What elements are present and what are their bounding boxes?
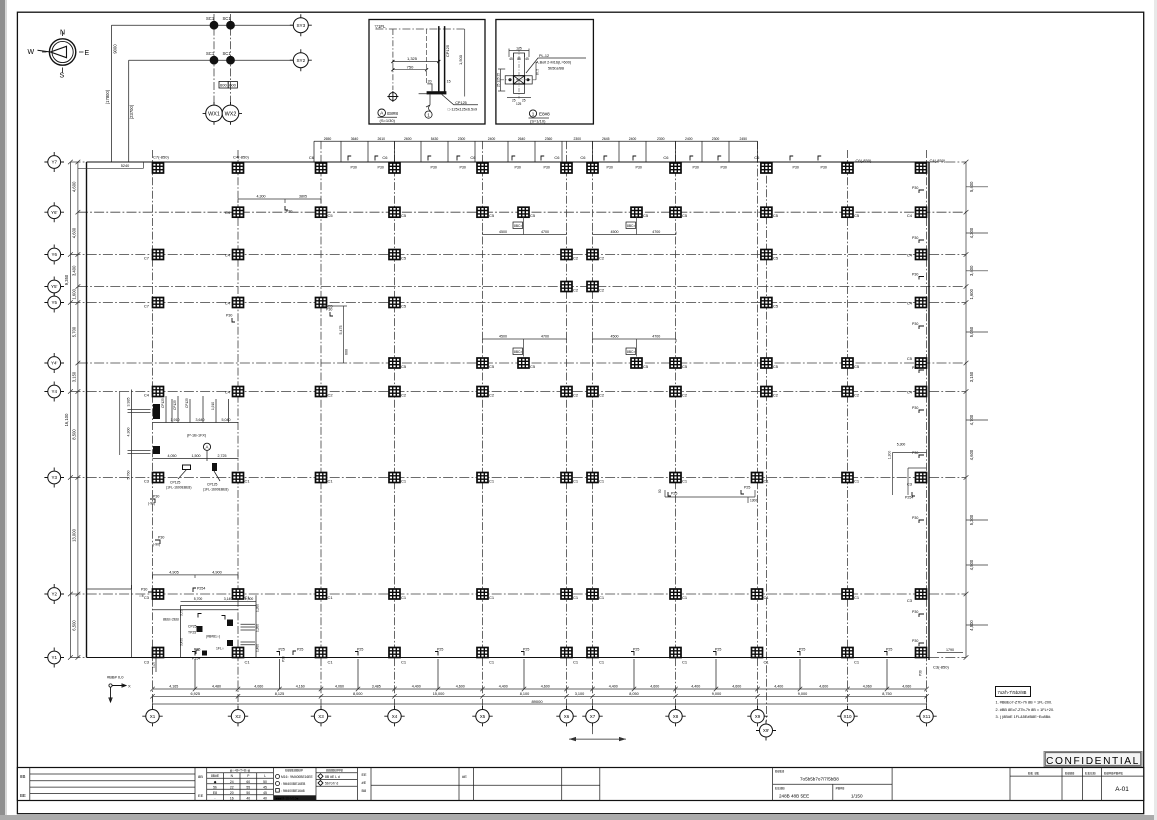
svg-text:3,485: 3,485 (372, 685, 381, 689)
svg-text:P30: P30 (281, 656, 285, 662)
svg-text:P30: P30 (158, 536, 164, 540)
svg-text:2400: 2400 (488, 137, 496, 141)
svg-text:C6: C6 (470, 155, 476, 160)
svg-text:C1: C1 (573, 595, 579, 600)
svg-text:B8: B8 (362, 789, 367, 793)
svg-text:25 125 25: 25 125 25 (496, 73, 500, 87)
svg-text:2. #BB 8Eo7-Z7b-7h 8B = 1FL+20: 2. #BB 8Eo7-Z7b-7h 8B = 1FL+20. (996, 708, 1055, 712)
svg-text:5,475: 5,475 (339, 326, 343, 335)
svg-text:3805: 3805 (299, 195, 307, 199)
svg-text:CP125: CP125 (455, 101, 467, 105)
svg-text:4,060: 4,060 (254, 685, 263, 689)
svg-text:P30: P30 (912, 186, 918, 190)
svg-text:C1: C1 (682, 595, 688, 600)
svg-text:45: 45 (263, 785, 267, 789)
svg-text:C5: C5 (401, 213, 407, 218)
svg-text:1,910: 1,910 (171, 418, 180, 422)
svg-text:600: 600 (345, 349, 349, 355)
svg-text:P254: P254 (192, 656, 200, 660)
svg-text:C2: C2 (599, 256, 605, 261)
svg-text:C4: C4 (144, 393, 150, 398)
svg-text:□-125x125x6.5x9: □-125x125x6.5x9 (448, 108, 477, 112)
svg-text:(-90): (-90) (148, 502, 155, 506)
svg-text:A.Bolt 2-M16(L=600): A.Bolt 2-M16(L=600) (536, 60, 572, 64)
svg-text:C2: C2 (854, 393, 860, 398)
svg-text:3,450: 3,450 (179, 638, 183, 646)
svg-text:8,750: 8,750 (882, 692, 892, 696)
svg-text:3,400: 3,400 (72, 265, 77, 276)
svg-text:2610: 2610 (377, 137, 385, 141)
svg-text:C3: C3 (144, 660, 150, 665)
svg-text:C6: C6 (754, 155, 760, 160)
svg-text:C4: C4 (907, 301, 913, 306)
svg-text:: 9M400BE16#8: : 9M400BE16#8 (281, 789, 305, 793)
svg-text:2650: 2650 (324, 137, 332, 141)
svg-text:4,600: 4,600 (732, 685, 741, 689)
svg-text:4,300: 4,300 (127, 428, 131, 437)
svg-text:P30: P30 (544, 165, 550, 169)
svg-text:1: 1 (532, 111, 535, 116)
svg-text:8,500: 8,500 (72, 429, 77, 440)
svg-text:P30: P30 (821, 165, 827, 169)
svg-text:5,700: 5,700 (72, 326, 77, 337)
svg-text:#E: #E (462, 774, 467, 779)
svg-text:(-90): (-90) (153, 543, 160, 547)
svg-text:4500: 4500 (499, 335, 507, 339)
svg-text:C5: C5 (682, 364, 688, 369)
svg-text:3,935: 3,935 (127, 398, 131, 407)
svg-text:C5: C5 (773, 213, 779, 218)
svg-text:20: 20 (428, 80, 432, 84)
svg-text:4,600: 4,600 (819, 685, 828, 689)
svg-text:8B#E: 8B#E (211, 774, 220, 778)
svg-text:C5: C5 (328, 213, 334, 218)
svg-text:C5: C5 (643, 213, 649, 218)
svg-text:5b5bz/8B: 5b5bz/8B (548, 66, 565, 70)
svg-text:13,000: 13,000 (72, 528, 77, 541)
svg-text:CP125: CP125 (445, 44, 450, 57)
svg-text:1,910: 1,910 (211, 402, 215, 410)
svg-text:C3: C3 (907, 598, 913, 603)
svg-text:C4: C4 (907, 213, 913, 218)
svg-text:#E: #E (362, 781, 367, 785)
svg-text:(#B#81○): (#B#81○) (206, 634, 220, 638)
svg-text:6,925: 6,925 (190, 692, 200, 696)
svg-text:87.5: 87.5 (536, 69, 540, 75)
svg-text:C2: C2 (573, 393, 579, 398)
svg-text:S: S (60, 73, 65, 80)
svg-text:P25: P25 (297, 648, 303, 652)
svg-text:PL-12: PL-12 (539, 54, 549, 58)
svg-text:C5: C5 (530, 364, 536, 369)
svg-text:3640: 3640 (351, 137, 359, 141)
svg-text:C4: C4 (225, 253, 231, 258)
svg-text:C6: C6 (382, 155, 388, 160)
svg-text:Y7: Y7 (51, 160, 57, 165)
svg-text:4,400: 4,400 (499, 685, 508, 689)
svg-text:5b7o7/ d: 5b7o7/ d (325, 782, 338, 786)
svg-text:SC1: SC1 (223, 51, 232, 56)
svg-text:4,060: 4,060 (335, 685, 344, 689)
svg-text:4500: 4500 (611, 230, 619, 234)
svg-text:P30: P30 (607, 165, 613, 169)
svg-text:5b: 5b (213, 785, 217, 789)
svg-text:P30: P30 (912, 406, 918, 410)
svg-text:600: 600 (229, 83, 236, 88)
svg-text:C1: C1 (764, 660, 770, 665)
svg-text:C5: C5 (489, 364, 495, 369)
svg-text:A-01: A-01 (1115, 786, 1129, 793)
svg-text:4,600: 4,600 (72, 181, 77, 192)
svg-text:4,400: 4,400 (691, 685, 700, 689)
svg-text:C6: C6 (554, 155, 560, 160)
svg-text:C1: C1 (245, 660, 251, 665)
svg-text:W: W (28, 49, 35, 56)
svg-text:4,300: 4,300 (257, 195, 266, 199)
svg-text:P30: P30 (912, 516, 918, 520)
svg-text:C4: C4 (225, 390, 231, 395)
svg-text:4,900: 4,900 (212, 571, 222, 575)
svg-text:X5: X5 (480, 714, 486, 719)
svg-text:750: 750 (407, 64, 414, 69)
svg-text:CONFIDENTIAL: CONFIDENTIAL (1046, 756, 1140, 767)
svg-text:X1: X1 (150, 714, 156, 719)
svg-text:C1: C1 (489, 660, 495, 665)
svg-text:X2: X2 (235, 714, 241, 719)
svg-text:C1: C1 (599, 595, 605, 600)
svg-text:8BC>: 8BC> (627, 224, 635, 228)
svg-text:A: A (206, 445, 209, 450)
svg-text:7o5b5b7o7/7/5bB8: 7o5b5b7o7/7/5bB8 (800, 776, 839, 781)
svg-text:C2: C2 (401, 393, 407, 398)
svg-text:(1FL-1600EBE8): (1FL-1600EBE8) (166, 486, 191, 490)
svg-text:4500: 4500 (499, 230, 507, 234)
svg-text:C1: C1 (328, 479, 334, 484)
svg-text:EE: EE (362, 773, 368, 777)
svg-text:C1: C1 (328, 660, 334, 665)
svg-text:3,640: 3,640 (196, 418, 205, 422)
svg-text:1,300: 1,300 (255, 624, 259, 632)
svg-text:P30: P30 (636, 165, 642, 169)
svg-text:P30: P30 (912, 236, 918, 240)
svg-text:X: X (128, 684, 131, 689)
svg-text:8BC>: 8BC> (514, 224, 522, 228)
svg-text:3,150: 3,150 (969, 371, 974, 382)
svg-text:4,600: 4,600 (541, 685, 550, 689)
svg-text:3,100: 3,100 (575, 692, 585, 696)
svg-text:89000: 89000 (531, 699, 543, 704)
svg-text:4700: 4700 (652, 230, 660, 234)
svg-text:Y3: Y3 (51, 475, 57, 480)
svg-text:6,500: 6,500 (72, 620, 77, 631)
svg-text:C1: C1 (573, 660, 579, 665)
svg-text:4,480: 4,480 (212, 685, 221, 689)
svg-text:C2: C2 (682, 393, 688, 398)
svg-text:4,160: 4,160 (296, 685, 305, 689)
svg-text:#BB# 0,0: #BB# 0,0 (107, 675, 124, 680)
svg-text:Y6: Y6 (51, 252, 57, 257)
svg-text:WX1: WX1 (208, 112, 220, 118)
svg-text:2645: 2645 (602, 137, 610, 141)
svg-text:TP25: TP25 (188, 630, 196, 634)
svg-text:(17800): (17800) (105, 89, 110, 104)
svg-text:C2: C2 (573, 256, 579, 261)
svg-text:CP25: CP25 (188, 624, 197, 628)
svg-text:C5: C5 (401, 304, 407, 309)
svg-text:1,500: 1,500 (192, 454, 201, 458)
svg-text:■■■M-16-M16■: ■■■M-16-M16■ (276, 796, 299, 800)
svg-text:C5: C5 (682, 213, 688, 218)
svg-text:4,600: 4,600 (650, 685, 659, 689)
svg-text:C5: C5 (854, 364, 860, 369)
svg-text:-: - (214, 796, 215, 800)
svg-text:P30: P30 (912, 366, 918, 370)
svg-text:B8E8: B8E8 (775, 770, 784, 774)
svg-text:P25: P25 (523, 648, 529, 652)
svg-text:C4: C4 (225, 210, 231, 215)
svg-text:C1: C1 (599, 479, 605, 484)
svg-text:4,050: 4,050 (168, 454, 177, 458)
svg-text:C4(-850): C4(-850) (233, 155, 249, 160)
svg-text:CP125: CP125 (161, 398, 165, 408)
svg-text:55: 55 (246, 785, 250, 789)
svg-text:22: 22 (230, 785, 234, 789)
svg-text:2360: 2360 (545, 137, 553, 141)
svg-text:(S=1/30): (S=1/30) (380, 118, 396, 123)
svg-text:M16 : 9M400BE16EE: M16 : 9M400BE16EE (281, 775, 314, 779)
svg-text:C1: C1 (599, 660, 605, 665)
svg-text:C6: C6 (580, 155, 586, 160)
svg-text:EE: EE (198, 793, 204, 798)
svg-text:248B 48B 5EE: 248B 48B 5EE (779, 794, 809, 799)
svg-text:C1: C1 (245, 479, 251, 484)
svg-text:45: 45 (263, 791, 267, 795)
svg-text:C3(-850): C3(-850) (933, 665, 949, 670)
svg-text:C5: C5 (773, 256, 779, 261)
svg-text:50: 50 (263, 780, 267, 784)
svg-text:1,400: 1,400 (255, 644, 259, 652)
svg-text:C1: C1 (854, 660, 860, 665)
svg-text:E: E (85, 50, 90, 57)
svg-text:X10: X10 (843, 714, 852, 719)
svg-text:C5: C5 (401, 364, 407, 369)
svg-text:C3: C3 (144, 479, 150, 484)
svg-text:8BC>: 8BC> (514, 350, 522, 354)
svg-text:P25: P25 (886, 648, 892, 652)
svg-text:2450: 2450 (739, 137, 747, 141)
svg-text:3. ( )8B#E 1FL&5E#B8E~Eo8B#.: 3. ( )8B#E 1FL&5E#B8E~Eo8B#. (996, 715, 1052, 719)
svg-text:1,500: 1,500 (458, 54, 463, 65)
svg-text:P25: P25 (744, 486, 750, 490)
svg-text:2300: 2300 (657, 137, 665, 141)
svg-text:X4: X4 (392, 714, 398, 719)
svg-text:P30: P30 (912, 273, 918, 277)
svg-text:C1: C1 (401, 479, 407, 484)
svg-text:C4: C4 (907, 390, 913, 395)
svg-text:P30: P30 (153, 495, 159, 499)
svg-text:C7: C7 (144, 304, 150, 309)
svg-text:888BB##8: 888BB##8 (326, 769, 343, 773)
svg-text:C1: C1 (328, 595, 334, 600)
svg-text:2300: 2300 (712, 137, 720, 141)
svg-text:5430: 5430 (431, 137, 439, 141)
svg-text:C5: C5 (530, 213, 536, 218)
svg-text:: 9M400BE16EB: : 9M400BE16EB (281, 782, 306, 786)
svg-text:SC1: SC1 (206, 51, 215, 56)
svg-text:1FL○: 1FL○ (216, 646, 224, 650)
svg-text:P30: P30 (515, 165, 521, 169)
svg-text:X3: X3 (318, 714, 324, 719)
svg-text:P25: P25 (671, 492, 677, 496)
svg-text:1: 1 (427, 112, 430, 117)
svg-text:E8#8: E8#8 (539, 111, 550, 116)
svg-text:P30: P30 (793, 165, 799, 169)
svg-text:C1: C1 (401, 660, 407, 665)
svg-text:4,600: 4,600 (969, 449, 974, 460)
svg-text:Y1: Y1 (51, 655, 57, 660)
svg-text:2400: 2400 (629, 137, 637, 141)
svg-text:P25: P25 (437, 648, 443, 652)
svg-text:24: 24 (230, 780, 234, 784)
svg-text:E8: E8 (213, 791, 217, 795)
svg-text:8B: 8B (20, 774, 25, 779)
svg-text:9,000: 9,000 (798, 692, 808, 696)
svg-text:X6: X6 (564, 714, 570, 719)
svg-text:20: 20 (230, 791, 234, 795)
svg-text:5,760: 5,760 (127, 471, 131, 480)
svg-text:P30: P30 (226, 314, 232, 318)
svg-text:45: 45 (509, 57, 513, 61)
svg-text:8,000: 8,000 (353, 692, 363, 696)
svg-text:8,050: 8,050 (629, 692, 639, 696)
svg-text:#B#8: #B#8 (836, 786, 845, 790)
svg-text:C1: C1 (489, 479, 495, 484)
svg-text:N: N (60, 30, 65, 37)
svg-text:○⑤: ○⑤ (139, 594, 144, 598)
svg-text:P25: P25 (799, 648, 805, 652)
svg-text:C1: C1 (573, 479, 579, 484)
svg-text:C4: C4 (225, 301, 231, 306)
svg-text:4,060: 4,060 (902, 685, 911, 689)
svg-text:C2: C2 (599, 288, 605, 293)
svg-text:SC1: SC1 (223, 16, 232, 21)
svg-text:C5: C5 (907, 356, 913, 361)
svg-text:4700: 4700 (652, 335, 660, 339)
svg-text:C1: C1 (489, 595, 495, 600)
svg-text:Y5: Y5 (51, 300, 57, 305)
svg-text:125: 125 (516, 102, 522, 106)
svg-text:2300: 2300 (573, 137, 581, 141)
svg-text:C7(-850): C7(-850) (153, 155, 169, 160)
svg-text:3,150: 3,150 (72, 371, 77, 382)
svg-text:C3: C3 (144, 595, 150, 600)
svg-text:BE 8E: BE 8E (1028, 770, 1040, 775)
svg-text:L: L (264, 774, 266, 778)
svg-text:P254: P254 (905, 496, 913, 500)
svg-text:5,700: 5,700 (194, 597, 203, 601)
svg-text:SY2: SY2 (296, 58, 305, 63)
svg-text:15,000: 15,000 (433, 692, 445, 696)
svg-text:P30: P30 (351, 165, 357, 169)
svg-text:3,75: 3,75 (179, 610, 183, 616)
svg-text:175: 175 (516, 47, 522, 51)
svg-text:1,300: 1,300 (255, 604, 259, 612)
svg-text:SC1: SC1 (206, 16, 215, 21)
svg-text:2400: 2400 (685, 137, 693, 141)
svg-text:EEEB: EEEB (1085, 770, 1096, 775)
svg-text:C1: C1 (682, 479, 688, 484)
svg-text:B888: B888 (1065, 770, 1075, 775)
svg-text:CP125: CP125 (173, 400, 177, 410)
svg-text:Y4: Y4 (51, 389, 57, 394)
svg-text:4,400: 4,400 (412, 685, 421, 689)
svg-text:8EB○2EB: 8EB○2EB (163, 617, 179, 621)
svg-text:25: 25 (522, 98, 526, 102)
svg-text:5,300: 5,300 (897, 443, 906, 447)
svg-text:4,905: 4,905 (169, 571, 179, 575)
svg-text:C2: C2 (599, 393, 605, 398)
svg-text:P30: P30 (693, 165, 699, 169)
svg-text:C5: C5 (489, 213, 495, 218)
svg-text:8BC>: 8BC> (627, 350, 635, 354)
svg-text:C6: C6 (663, 155, 669, 160)
svg-text:P30: P30 (912, 451, 918, 455)
svg-text:4500: 4500 (611, 335, 619, 339)
svg-text:C6: C6 (309, 155, 315, 160)
svg-text:4,600: 4,600 (72, 227, 77, 238)
svg-text:4700: 4700 (541, 335, 549, 339)
svg-text:1,300: 1,300 (245, 597, 254, 601)
svg-text:1790: 1790 (946, 648, 954, 652)
svg-text:50: 50 (246, 791, 250, 795)
svg-text:φ○+8+T+8○φ: φ○+8+T+8○φ (230, 769, 251, 773)
svg-text:X8: X8 (673, 714, 679, 719)
svg-text:C1: C1 (401, 595, 407, 600)
svg-text:C2: C2 (573, 288, 579, 293)
svg-text:B8#8#B#E: B8#8#B#E (1104, 770, 1123, 775)
svg-text:4,400: 4,400 (774, 685, 783, 689)
svg-text:X9': X9' (763, 728, 770, 733)
svg-text:C5: C5 (643, 364, 649, 369)
svg-text:C1: C1 (854, 595, 860, 600)
svg-text:Y6': Y6' (51, 210, 58, 215)
svg-text:X7: X7 (590, 714, 596, 719)
svg-text:4,600: 4,600 (456, 685, 465, 689)
svg-text:X9: X9 (755, 714, 761, 719)
svg-text:P30: P30 (378, 165, 384, 169)
svg-text:4,060: 4,060 (863, 685, 872, 689)
svg-text:◆: ◆ (214, 780, 217, 784)
svg-text:4,400: 4,400 (609, 685, 618, 689)
svg-text:45: 45 (525, 57, 529, 61)
svg-text:P30: P30 (912, 639, 918, 643)
svg-text:P25: P25 (633, 648, 639, 652)
svg-text:40: 40 (246, 796, 250, 800)
svg-text:Y5': Y5' (51, 284, 58, 289)
svg-text:8B: 8B (198, 774, 203, 779)
svg-text:8,125: 8,125 (275, 692, 285, 696)
svg-text:C1: C1 (682, 660, 688, 665)
svg-text:P25: P25 (279, 648, 285, 652)
svg-text:1,325: 1,325 (407, 56, 418, 61)
svg-text:2640: 2640 (518, 137, 526, 141)
svg-text:CP125: CP125 (170, 481, 180, 485)
svg-text:9,000: 9,000 (712, 692, 722, 696)
svg-text:C2: C2 (773, 393, 779, 398)
svg-text:SY3: SY3 (296, 23, 305, 28)
svg-text:1,05: 1,05 (151, 662, 155, 668)
svg-text:X11: X11 (923, 714, 931, 719)
